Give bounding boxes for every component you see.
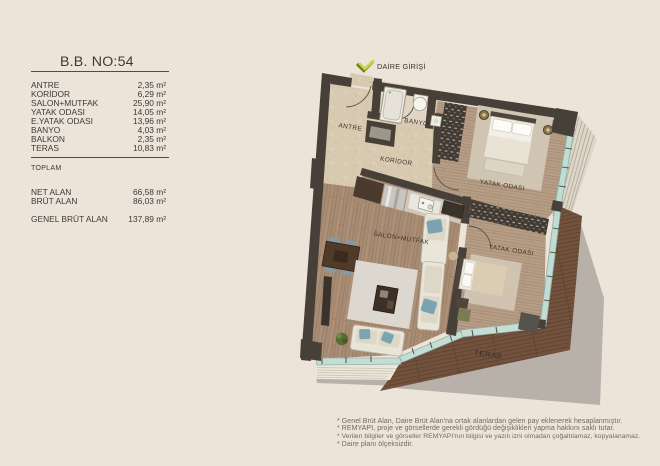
svg-text:DAİRE GİRİŞİ: DAİRE GİRİŞİ (377, 62, 426, 71)
